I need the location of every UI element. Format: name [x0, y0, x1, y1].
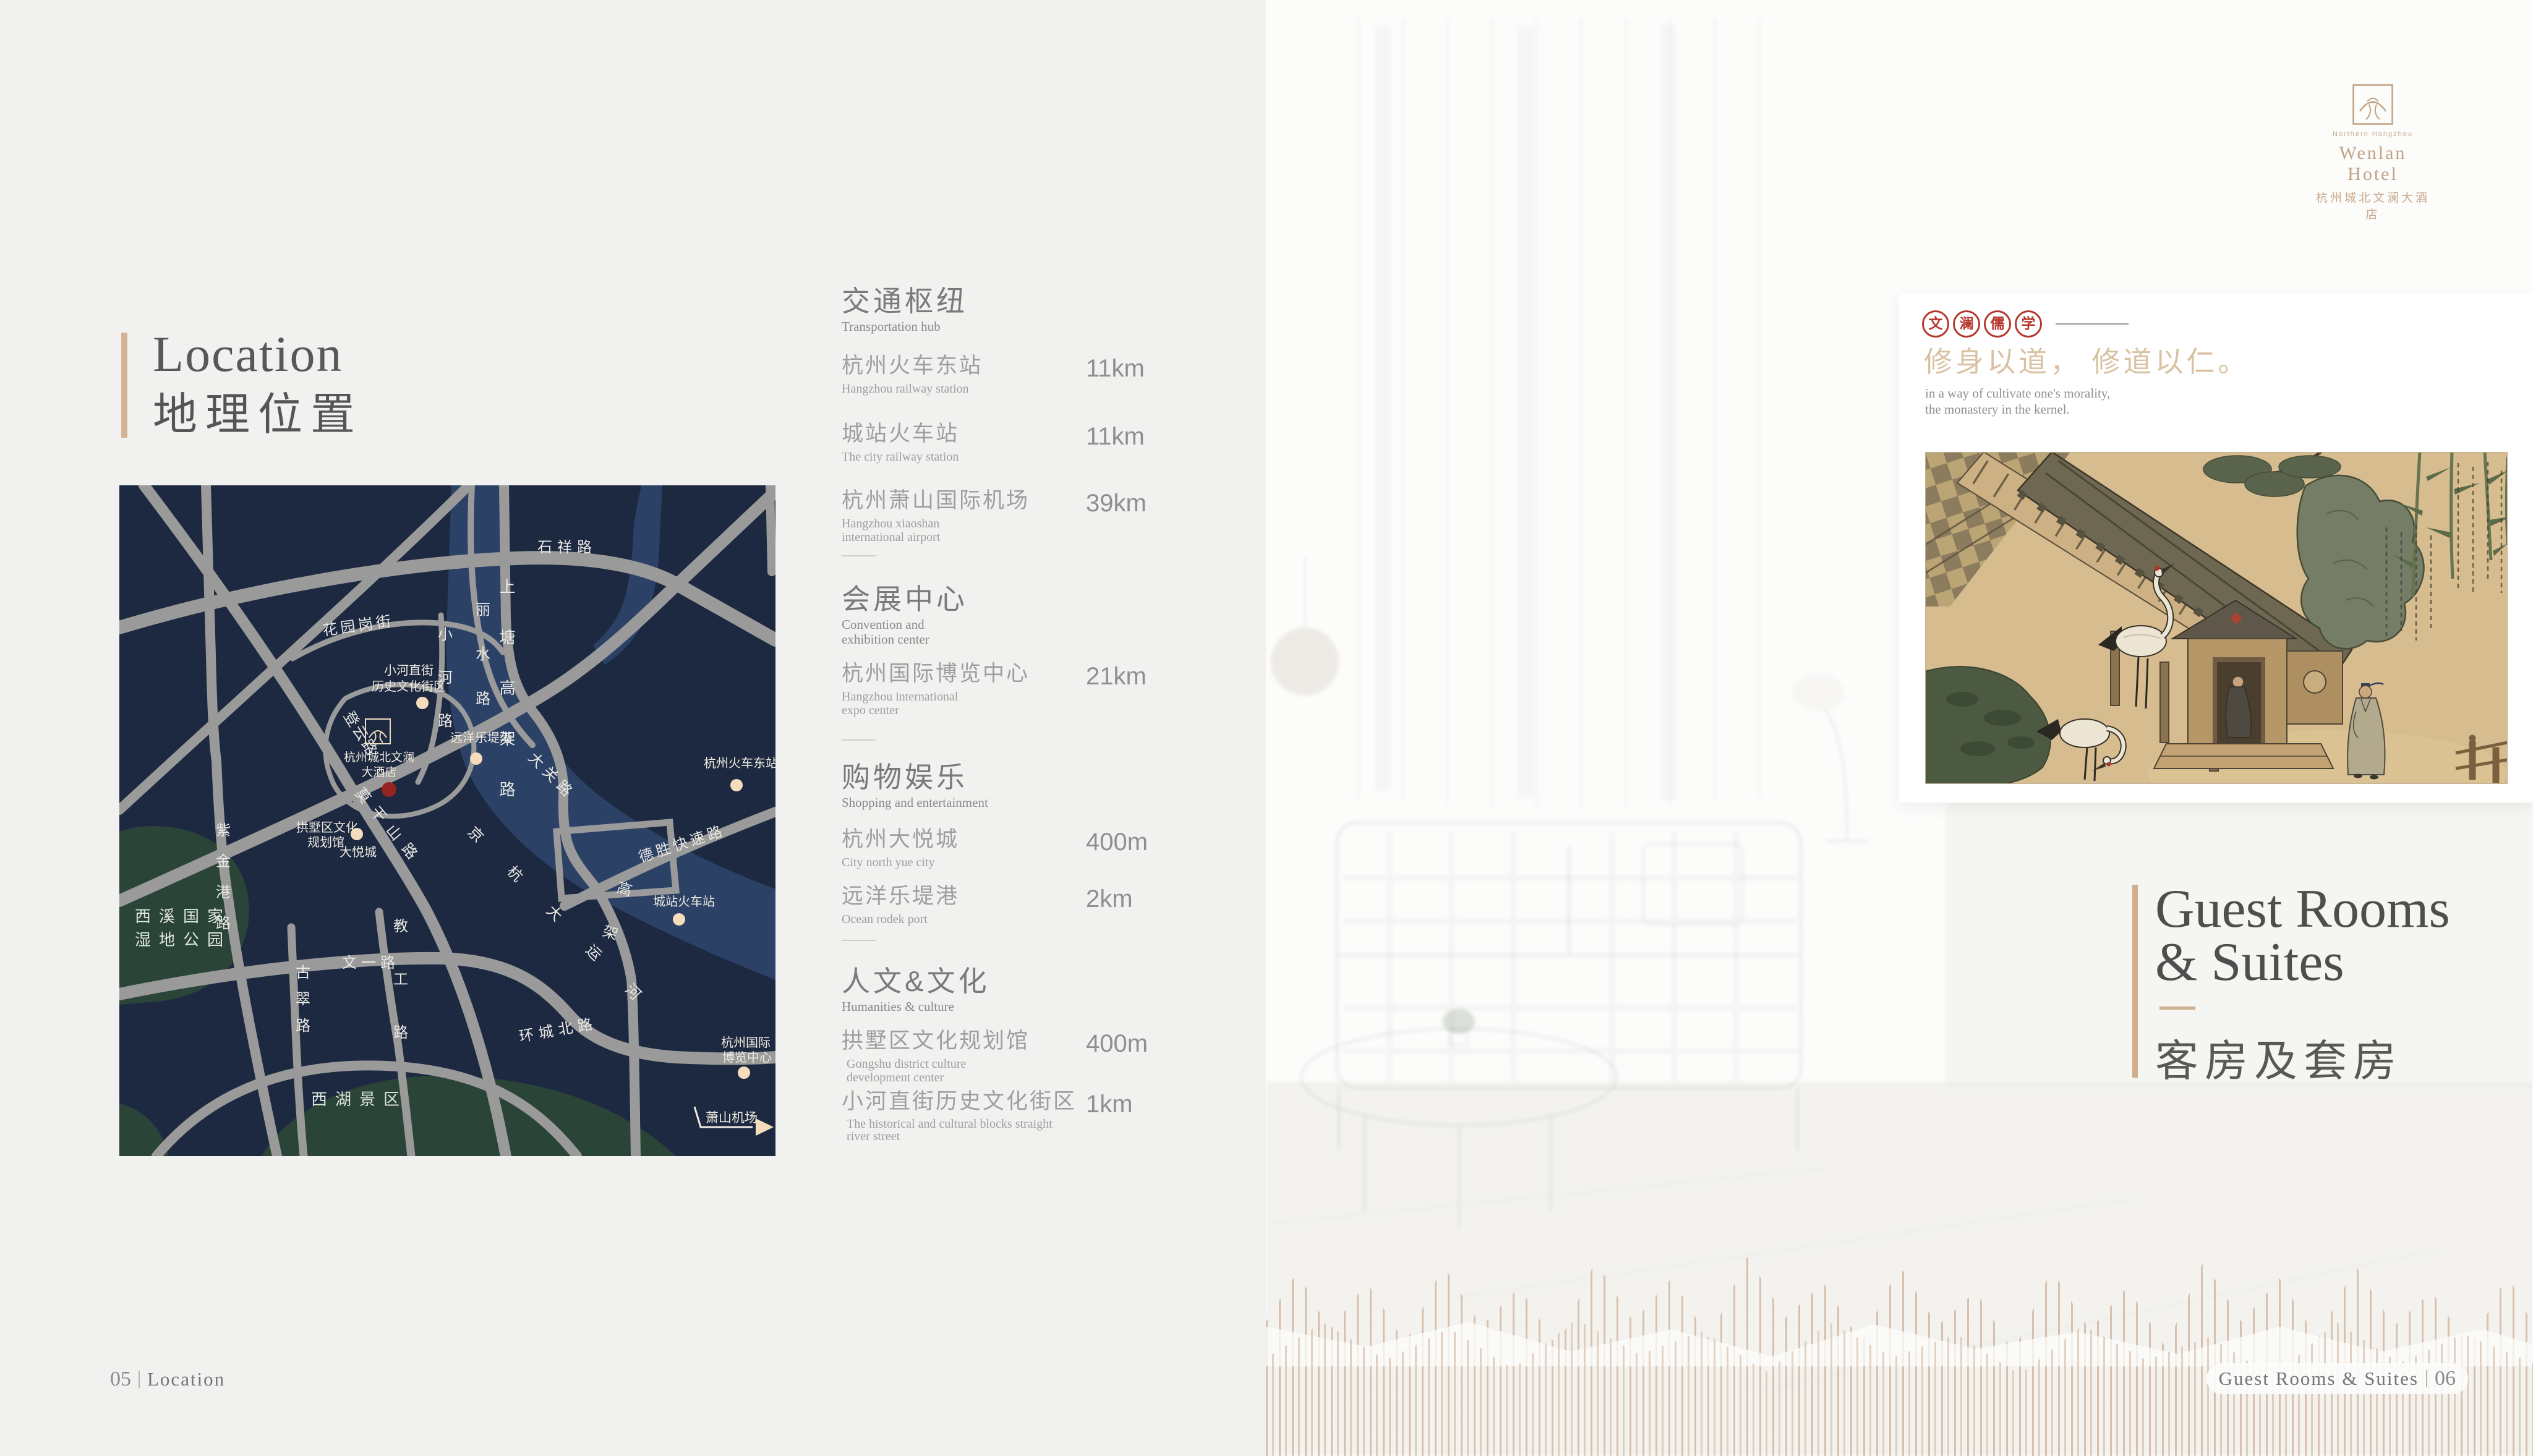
svg-text:杭州国际: 杭州国际 [721, 1036, 771, 1050]
poi-joy-city: 大悦城 [340, 845, 377, 859]
item-name-en: Hangzhou international expo center [842, 690, 981, 717]
page-number: 06 [2435, 1367, 2456, 1390]
section-heading-en: Convention and exhibition center [842, 617, 959, 647]
section-heading-cn: 会展中心 [842, 584, 1188, 615]
seal-stamp-icon: 儒 [1984, 310, 2011, 338]
hotel-logo-icon [2352, 84, 2393, 125]
item-distance: 1km [1086, 1091, 1133, 1118]
section-shopping: 购物娱乐 Shopping and entertainment 杭州大悦城 Ci… [842, 762, 1188, 926]
page-title-en: Location [153, 326, 343, 382]
seal-stamp-icon: 学 [2015, 310, 2042, 338]
guest-title-accent-bar [2132, 885, 2138, 1078]
list-item: 杭州萧山国际机场 Hangzhou xiaoshan international… [842, 487, 1188, 544]
seal-stamp-icon: 澜 [1953, 310, 1980, 338]
svg-text:大悦城: 大悦城 [340, 845, 377, 859]
svg-text:拱墅区文化: 拱墅区文化 [296, 820, 358, 835]
section-culture: 人文&文化 Humanities & culture 拱墅区文化规划馆 Gong… [842, 966, 1188, 1143]
svg-text:杭州火车东站: 杭州火车东站 [704, 756, 775, 770]
item-name-en: Hangzhou xiaoshan international airport [842, 517, 1002, 544]
svg-text:教工路: 教工路 [391, 918, 408, 1078]
svg-text:远洋乐堤港: 远洋乐堤港 [450, 731, 512, 745]
calligraphy-quote: 修身以道， 修道以仁。 [1924, 339, 2250, 380]
brand-name-cn: 杭州城北文澜大酒店 [2311, 189, 2435, 222]
section-transportation: 交通枢纽 Transportation hub 杭州火车东站 Hangzhou … [842, 286, 1188, 544]
svg-text:城站火车站: 城站火车站 [653, 895, 715, 909]
footer-label: Location [147, 1368, 225, 1390]
hotel-dot [382, 782, 396, 797]
brochure-spread: Location 地理位置 [0, 0, 2533, 1456]
section-heading-en: Shopping and entertainment [842, 795, 1188, 810]
section-divider [842, 940, 876, 941]
svg-text:博览中心: 博览中心 [722, 1050, 772, 1065]
list-item: 远洋乐堤港 Ocean rodek port 2km [842, 883, 1188, 926]
svg-text:杭州城北文澜: 杭州城北文澜 [344, 751, 414, 764]
list-item: 拱墅区文化规划馆 Gongshu district culture develo… [842, 1028, 1188, 1084]
item-name-en: Ocean rodek port [842, 913, 1188, 926]
culture-card: 文 澜 儒 学 修身以道， 修道以仁。 in a way of cultivat… [1899, 294, 2533, 803]
guest-title-underline [2159, 1007, 2195, 1010]
distance-list: 交通枢纽 Transportation hub 杭州火车东站 Hangzhou … [842, 286, 1188, 1143]
svg-text:萧山机场: 萧山机场 [706, 1111, 758, 1125]
seal-stamp-icon: 文 [1922, 310, 1949, 338]
page-location: Location 地理位置 [0, 0, 1266, 1456]
logo-tagline: Northern Hangzhou [2311, 130, 2435, 138]
footer-divider [139, 1371, 140, 1388]
item-name-en: The historical and cultural blocks strai… [847, 1118, 1057, 1143]
item-distance: 11km [1086, 423, 1145, 451]
list-item: 城站火车站 The city railway station 11km [842, 420, 1188, 464]
item-name-en: Hangzhou railway station [842, 382, 1188, 396]
section-divider [842, 555, 876, 556]
page-number: 05 [110, 1368, 131, 1391]
svg-text:上塘高架路: 上塘高架路 [497, 578, 516, 832]
section-heading-cn: 人文&文化 [842, 966, 1188, 997]
item-distance: 21km [1086, 663, 1147, 691]
section-heading-en: Humanities & culture [842, 999, 1188, 1014]
seal-rule-line [2056, 323, 2129, 325]
svg-text:规划馆: 规划馆 [307, 835, 344, 849]
section-convention: 会展中心 Convention and exhibition center 杭州… [842, 584, 1188, 717]
location-map: 石祥路 上塘高架路 丽水路 花园岗街 小河路 登云路 莫干山路 大关路 紫金港路… [119, 485, 775, 1156]
section-heading-en: Transportation hub [842, 319, 1188, 334]
page-title-cn: 地理位置 [153, 391, 363, 440]
footer-right: Guest Rooms & Suites 06 [2206, 1363, 2468, 1394]
guest-title-cn: 客房及套房 [2155, 1026, 2403, 1089]
quote-caption-line1: in a way of cultivate one's morality, [1925, 385, 2110, 401]
section-heading-cn: 购物娱乐 [842, 762, 1188, 793]
svg-text:湿地公园: 湿地公园 [135, 930, 231, 949]
item-name-en: Gongshu district culture development cen… [847, 1057, 998, 1084]
title-accent-bar [121, 333, 127, 438]
guest-title-line1: Guest Rooms [2155, 883, 2450, 936]
section-divider [842, 739, 876, 741]
footer-label: Guest Rooms & Suites [2219, 1368, 2419, 1390]
hotel-logo: Northern Hangzhou Wenlan Hotel 杭州城北文澜大酒店 [2311, 84, 2435, 222]
seal-row: 文 澜 儒 学 [1922, 310, 2129, 338]
page-guest-rooms: Northern Hangzhou Wenlan Hotel 杭州城北文澜大酒店… [1266, 0, 2533, 1456]
guest-title-en: Guest Rooms & Suites [2155, 883, 2450, 989]
item-distance: 39km [1086, 490, 1147, 517]
section-heading-cn: 交通枢纽 [842, 286, 1188, 317]
brand-name-en: Wenlan Hotel [2311, 143, 2435, 185]
footer-left: 05 Location [110, 1368, 225, 1391]
svg-text:西溪国家: 西溪国家 [135, 907, 231, 926]
svg-text:紫金港路: 紫金港路 [213, 822, 231, 946]
list-item: 杭州大悦城 City north yue city 400m [842, 826, 1188, 869]
guest-title-line2: & Suites [2155, 936, 2450, 989]
item-distance: 11km [1086, 355, 1145, 383]
svg-text:古翠路: 古翠路 [293, 964, 310, 1044]
svg-text:大酒店: 大酒店 [361, 765, 396, 779]
item-distance: 400m [1086, 1030, 1148, 1058]
item-name-cn: 远洋乐堤港 [842, 883, 1188, 910]
item-name-en: The city railway station [842, 450, 1188, 464]
quote-caption: in a way of cultivate one's morality, th… [1925, 385, 2110, 417]
svg-text:小河直街: 小河直街 [384, 663, 434, 678]
svg-text:历史文化街区: 历史文化街区 [372, 679, 446, 694]
svg-text:石祥路: 石祥路 [537, 539, 597, 556]
svg-text:丽水路: 丽水路 [473, 602, 490, 735]
item-name-cn: 小河直街历史文化街区 [842, 1088, 1188, 1115]
footer-divider [2426, 1370, 2427, 1387]
item-name-en: City north yue city [842, 856, 1188, 869]
list-item: 杭州国际博览中心 Hangzhou international expo cen… [842, 660, 1188, 717]
list-item: 小河直街历史文化街区 The historical and cultural b… [842, 1088, 1188, 1143]
list-item: 杭州火车东站 Hangzhou railway station 11km [842, 352, 1188, 396]
item-distance: 2km [1086, 885, 1133, 913]
quote-caption-line2: the monastery in the kernel. [1925, 401, 2110, 417]
item-distance: 400m [1086, 828, 1148, 856]
classical-painting [1925, 452, 2508, 784]
svg-text:西湖景区: 西湖景区 [311, 1090, 408, 1109]
